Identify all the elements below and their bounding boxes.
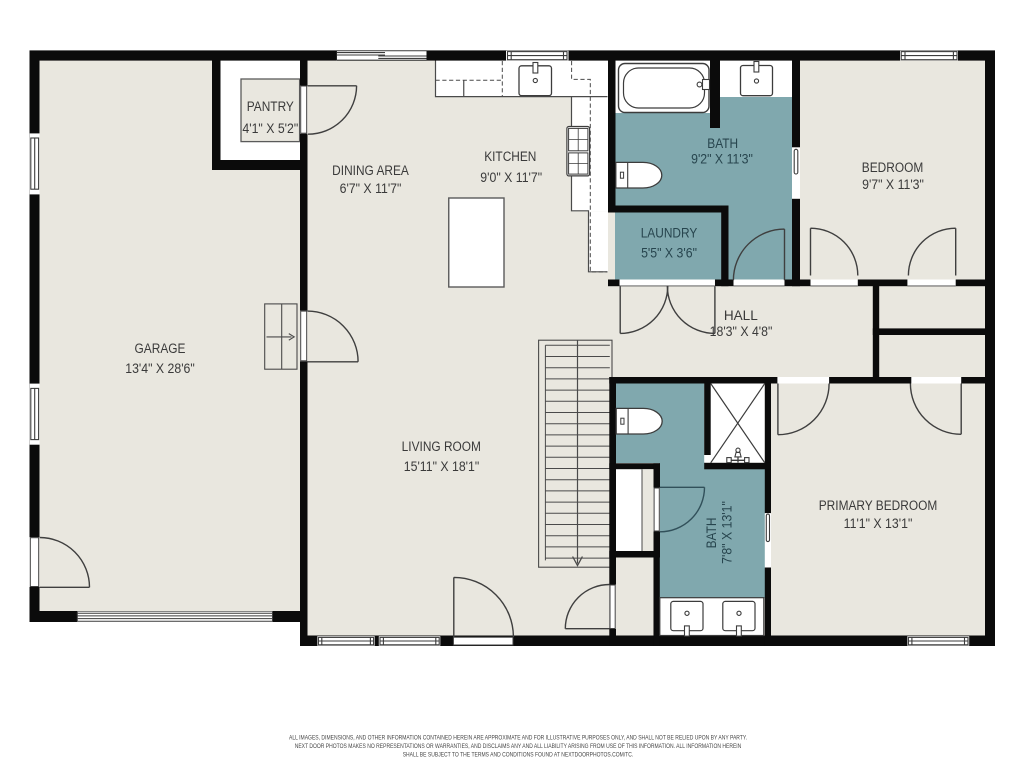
svg-text:BATH: BATH bbox=[703, 518, 719, 549]
svg-text:18'3" X 4'8": 18'3" X 4'8" bbox=[710, 323, 773, 339]
svg-text:LAUNDRY: LAUNDRY bbox=[641, 225, 698, 241]
svg-text:PANTRY: PANTRY bbox=[247, 98, 294, 114]
svg-text:11'1" X 13'1": 11'1" X 13'1" bbox=[844, 515, 913, 531]
svg-text:NEXT DOOR PHOTOS MAKES NO REPR: NEXT DOOR PHOTOS MAKES NO REPRESENTATION… bbox=[295, 743, 742, 750]
svg-text:DINING AREA: DINING AREA bbox=[332, 162, 409, 178]
svg-text:7'8" X 13'1": 7'8" X 13'1" bbox=[719, 501, 735, 564]
svg-text:13'4" X 28'6": 13'4" X 28'6" bbox=[125, 360, 195, 376]
svg-text:ALL IMAGES, DIMENSIONS, AND OT: ALL IMAGES, DIMENSIONS, AND OTHER INFORM… bbox=[289, 735, 747, 742]
svg-text:15'11" X 18'1": 15'11" X 18'1" bbox=[404, 458, 480, 474]
svg-text:HALL: HALL bbox=[724, 308, 758, 323]
svg-text:9'7" X 11'3": 9'7" X 11'3" bbox=[862, 176, 924, 192]
svg-text:PRIMARY BEDROOM: PRIMARY BEDROOM bbox=[819, 497, 938, 513]
svg-text:BATH: BATH bbox=[707, 135, 738, 151]
svg-text:GARAGE: GARAGE bbox=[135, 340, 186, 356]
svg-text:9'0" X 11'7": 9'0" X 11'7" bbox=[480, 169, 542, 185]
svg-text:SHALL BE SUBJECT TO THE TERMS: SHALL BE SUBJECT TO THE TERMS AND CONDIT… bbox=[403, 752, 634, 759]
svg-text:9'2" X 11'3": 9'2" X 11'3" bbox=[691, 151, 753, 167]
svg-text:6'7" X 11'7": 6'7" X 11'7" bbox=[340, 180, 402, 196]
svg-text:KITCHEN: KITCHEN bbox=[484, 148, 536, 164]
svg-text:5'5" X 3'6": 5'5" X 3'6" bbox=[641, 245, 697, 261]
svg-text:LIVING ROOM: LIVING ROOM bbox=[402, 438, 481, 454]
svg-text:4'1" X 5'2": 4'1" X 5'2" bbox=[242, 120, 298, 136]
svg-text:BEDROOM: BEDROOM bbox=[862, 159, 923, 175]
